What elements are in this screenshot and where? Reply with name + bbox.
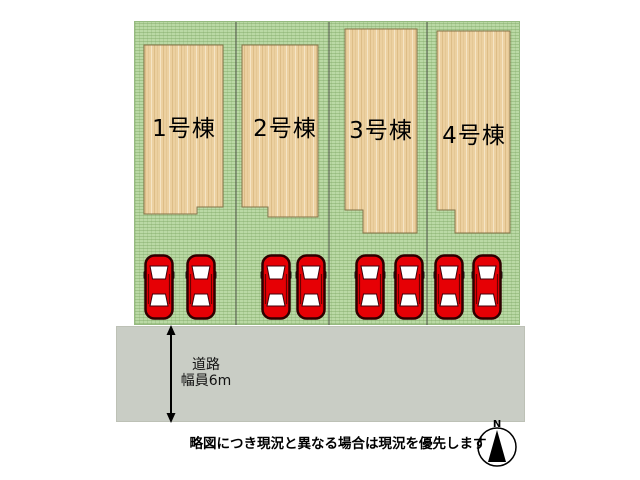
plan-drawing: [0, 0, 640, 480]
car-icon: [186, 256, 217, 319]
car-icon: [355, 256, 386, 319]
lot-label-3: 3号棟: [349, 111, 413, 145]
car-icon: [296, 256, 327, 319]
caption: 略図につき現況と異なる場合は現況を優先します: [190, 432, 487, 452]
car-icon: [144, 256, 175, 319]
road-width-arrow: [167, 325, 176, 423]
car-icon: [472, 256, 503, 319]
road-label-line1: 道路: [181, 357, 232, 373]
site-plan: 1号棟 2号棟 3号棟 4号棟 道路 幅員6m 略図につき現況と異なる場合は現況…: [0, 0, 640, 480]
north-label: N: [493, 419, 501, 430]
lot-label-1: 1号棟: [152, 109, 216, 143]
car-icon: [434, 256, 465, 319]
lot-label-4: 4号棟: [442, 116, 506, 150]
car-icon: [261, 256, 292, 319]
road-label-line2: 幅員6m: [181, 373, 232, 389]
road-label: 道路 幅員6m: [181, 357, 232, 389]
lot-label-2: 2号棟: [253, 109, 317, 143]
car-icon: [394, 256, 425, 319]
